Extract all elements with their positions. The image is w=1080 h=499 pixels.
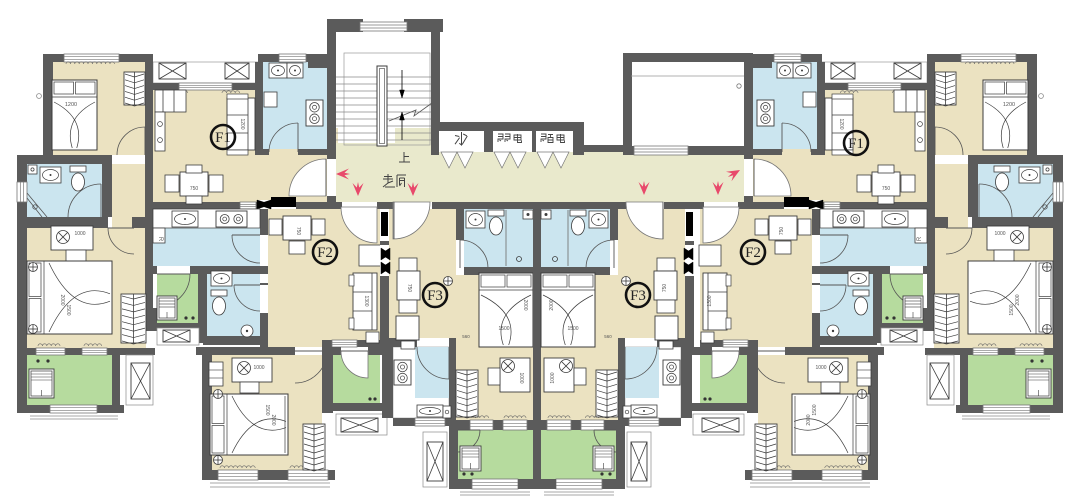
svg-text:1000: 1000 [994, 231, 1005, 237]
svg-text:750: 750 [190, 186, 199, 192]
svg-text:1500: 1500 [65, 304, 71, 315]
svg-text:F3: F3 [630, 288, 646, 304]
svg-text:750: 750 [882, 186, 891, 192]
svg-text:2000: 2000 [270, 414, 276, 425]
svg-text:F2: F2 [317, 245, 333, 261]
svg-text:1500: 1500 [812, 404, 818, 415]
svg-text:1200: 1200 [838, 118, 844, 129]
svg-text:1500: 1500 [498, 326, 509, 332]
svg-text:F2: F2 [745, 245, 761, 261]
svg-text:2000: 2000 [59, 294, 65, 305]
svg-text:1500: 1500 [567, 326, 578, 332]
svg-text:F1: F1 [848, 136, 864, 152]
svg-text:2000: 2000 [549, 299, 555, 310]
svg-text:750: 750 [662, 284, 668, 293]
svg-text:1200: 1200 [65, 102, 77, 108]
svg-text:1300: 1300 [363, 295, 369, 306]
svg-text:1500: 1500 [264, 404, 270, 415]
svg-text:560: 560 [604, 334, 612, 339]
svg-text:1500: 1500 [1009, 304, 1015, 315]
svg-text:1000: 1000 [815, 365, 826, 371]
svg-text:1300: 1300 [707, 295, 713, 306]
svg-text:F1: F1 [215, 130, 231, 146]
svg-text:1200: 1200 [239, 118, 245, 129]
svg-text:F3: F3 [427, 288, 443, 304]
svg-text:R: R [157, 237, 163, 242]
svg-text:1000: 1000 [550, 372, 556, 383]
svg-text:750: 750 [779, 227, 785, 236]
svg-text:560: 560 [462, 334, 470, 339]
svg-text:1000: 1000 [518, 372, 524, 383]
svg-text:750: 750 [295, 227, 301, 236]
svg-text:R: R [917, 236, 923, 241]
svg-text:2000: 2000 [1015, 294, 1021, 305]
svg-text:1000: 1000 [74, 231, 85, 237]
svg-text:750: 750 [406, 284, 412, 293]
svg-text:1000: 1000 [253, 365, 264, 371]
svg-text:1200: 1200 [1003, 102, 1015, 108]
svg-text:2000: 2000 [522, 299, 528, 310]
